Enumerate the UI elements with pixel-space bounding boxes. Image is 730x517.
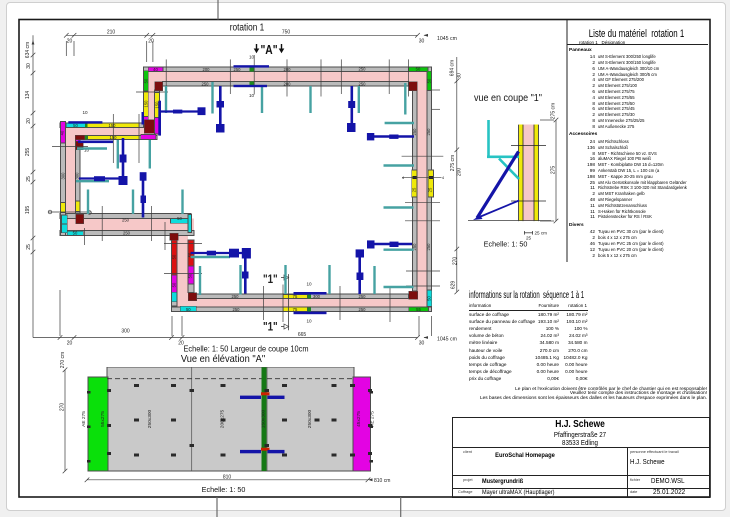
svg-text:20: 20 — [26, 118, 32, 124]
svg-text:210: 210 — [107, 30, 116, 36]
svg-text:275 cm: 275 cm — [551, 103, 557, 119]
svg-text:50: 50 — [188, 273, 193, 278]
svg-text:195: 195 — [25, 206, 31, 215]
svg-text:50: 50 — [172, 254, 177, 259]
svg-text:40: 40 — [60, 130, 65, 135]
svg-text:50: 50 — [177, 216, 182, 221]
svg-text:250: 250 — [426, 128, 431, 136]
svg-text:629: 629 — [451, 281, 457, 290]
svg-text:Vue en élévation "A": Vue en élévation "A" — [181, 354, 265, 365]
svg-text:250: 250 — [202, 81, 210, 86]
svg-text:50: 50 — [144, 78, 149, 83]
svg-text:634 cm: 634 cm — [25, 42, 31, 58]
svg-text:25 cm: 25 cm — [535, 231, 548, 236]
svg-text:10: 10 — [249, 93, 255, 98]
svg-text:250: 250 — [123, 231, 131, 236]
svg-text:45x275: 45x275 — [356, 411, 362, 427]
svg-text:AE 275: AE 275 — [81, 411, 87, 427]
svg-text:200: 200 — [284, 67, 292, 72]
svg-text:150: 150 — [144, 100, 149, 108]
svg-text:50: 50 — [73, 231, 78, 236]
svg-text:30: 30 — [26, 63, 32, 69]
svg-text:250: 250 — [359, 81, 367, 86]
svg-text:30: 30 — [419, 39, 425, 45]
svg-text:250x300: 250x300 — [307, 409, 313, 428]
svg-text:694 cm: 694 cm — [450, 60, 456, 76]
svg-text:10: 10 — [306, 319, 312, 324]
svg-text:250: 250 — [359, 294, 367, 299]
svg-text:55: 55 — [416, 307, 421, 312]
svg-text:275 cm: 275 cm — [450, 155, 456, 171]
svg-text:20: 20 — [148, 39, 154, 45]
svg-text:150: 150 — [109, 123, 117, 128]
svg-text:50: 50 — [427, 78, 432, 83]
svg-text:810: 810 — [223, 474, 232, 480]
svg-text:vue en coupe "1": vue en coupe "1" — [474, 91, 542, 102]
svg-text:25: 25 — [26, 176, 32, 182]
svg-text:25: 25 — [428, 187, 433, 192]
svg-text:"1": "1" — [263, 273, 278, 286]
svg-text:4: 4 — [442, 175, 445, 180]
svg-text:10: 10 — [306, 282, 312, 287]
svg-text:300: 300 — [313, 294, 321, 299]
svg-text:250: 250 — [232, 294, 240, 299]
svg-text:10: 10 — [249, 55, 255, 60]
svg-text:10: 10 — [82, 110, 88, 115]
svg-text:250: 250 — [359, 307, 367, 312]
svg-text:200: 200 — [284, 81, 292, 86]
svg-text:200: 200 — [203, 67, 211, 72]
svg-text:"A": "A" — [260, 44, 277, 57]
svg-text:250x300: 250x300 — [147, 409, 153, 428]
svg-text:20: 20 — [67, 39, 73, 45]
svg-text:30: 30 — [457, 73, 463, 79]
svg-text:Echelle: 1: 50: Echelle: 1: 50 — [484, 239, 528, 248]
svg-text:250: 250 — [412, 128, 417, 136]
svg-text:200: 200 — [457, 168, 463, 177]
svg-text:Echelle: 1: 50: Echelle: 1: 50 — [202, 485, 246, 494]
svg-text:750: 750 — [282, 30, 291, 36]
svg-text:250: 250 — [122, 218, 130, 223]
svg-text:300: 300 — [121, 329, 130, 335]
svg-text:270: 270 — [453, 257, 459, 266]
svg-text:75: 75 — [293, 307, 298, 312]
svg-text:250: 250 — [234, 67, 242, 72]
svg-text:810 cm: 810 cm — [374, 478, 390, 484]
svg-text:134: 134 — [25, 91, 31, 100]
svg-text:25: 25 — [412, 187, 417, 192]
svg-text:250: 250 — [426, 243, 431, 251]
svg-text:200x275: 200x275 — [220, 409, 226, 428]
svg-text:50: 50 — [427, 296, 432, 301]
svg-text:50: 50 — [186, 307, 191, 312]
svg-text:1045 cm: 1045 cm — [437, 36, 457, 42]
svg-text:270: 270 — [60, 403, 66, 412]
svg-text:75: 75 — [293, 294, 298, 299]
svg-text:20: 20 — [67, 341, 73, 347]
svg-text:255: 255 — [25, 148, 31, 157]
svg-text:665: 665 — [298, 332, 307, 338]
svg-text:300: 300 — [61, 172, 66, 180]
svg-text:30: 30 — [419, 341, 425, 347]
svg-text:150x300: 150x300 — [261, 409, 267, 428]
svg-text:250: 250 — [359, 67, 367, 72]
svg-text:25: 25 — [26, 244, 32, 250]
svg-text:AE 275: AE 275 — [370, 411, 376, 427]
svg-text:Echelle: 1: 50 Largeur de co: Echelle: 1: 50 Largeur de coupe 10cm — [183, 344, 308, 353]
svg-text:55x275: 55x275 — [100, 411, 106, 427]
svg-text:50: 50 — [416, 67, 421, 72]
svg-text:40: 40 — [153, 67, 158, 72]
svg-text:250: 250 — [233, 307, 241, 312]
svg-text:275: 275 — [551, 166, 557, 175]
svg-text:rotation 1: rotation 1 — [230, 22, 265, 33]
svg-text:1045 cm: 1045 cm — [437, 337, 457, 343]
svg-text:"1": "1" — [263, 321, 278, 334]
svg-text:50: 50 — [172, 282, 177, 287]
svg-text:300: 300 — [75, 172, 80, 180]
svg-text:270 cm: 270 cm — [60, 352, 66, 368]
svg-text:150: 150 — [110, 135, 118, 140]
